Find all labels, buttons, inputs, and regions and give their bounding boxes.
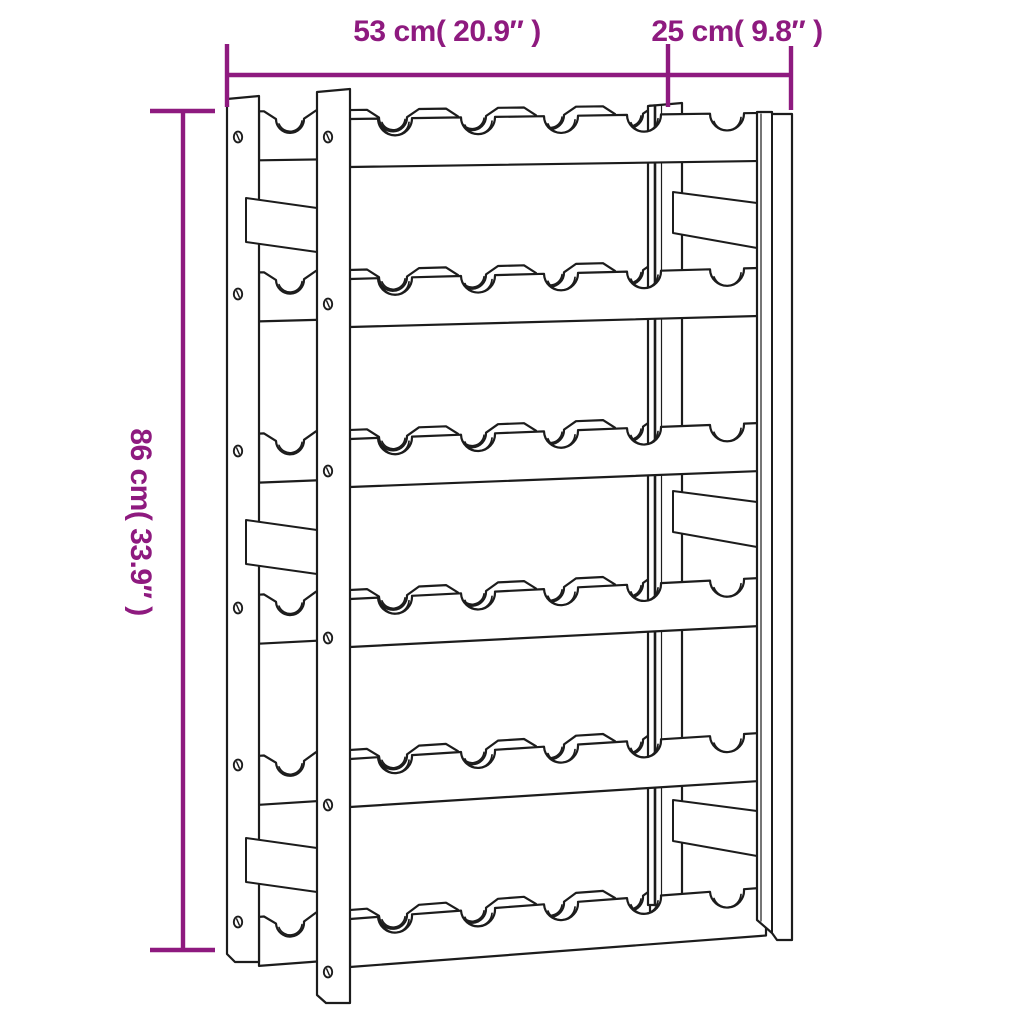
rack-line — [350, 888, 766, 968]
rack-line — [350, 268, 766, 327]
diagram-canvas: 53 cm( 20.9″ ) 25 cm( 9.8″ ) 86 cm( 33.9… — [0, 0, 1024, 1024]
rack-line — [757, 112, 792, 940]
rack-line — [246, 198, 317, 252]
rack-line — [350, 578, 766, 647]
height-dimension-label: 86 cm( 33.9″ ) — [124, 428, 157, 615]
rack-line — [673, 491, 757, 547]
rack-line — [317, 89, 350, 1003]
wine-rack-dimension-diagram: 53 cm( 20.9″ ) 25 cm( 9.8″ ) 86 cm( 33.9… — [0, 0, 1024, 1024]
rack-line — [673, 192, 757, 248]
rack-line — [246, 520, 317, 574]
rack-line — [350, 733, 766, 807]
rack-line — [350, 113, 766, 167]
rack-line — [246, 838, 317, 892]
rack-line — [673, 800, 757, 856]
width-dimension-label: 53 cm( 20.9″ ) — [353, 15, 540, 48]
wine-rack-line-art — [227, 89, 792, 1003]
depth-dimension-label: 25 cm( 9.8″ ) — [651, 15, 822, 48]
